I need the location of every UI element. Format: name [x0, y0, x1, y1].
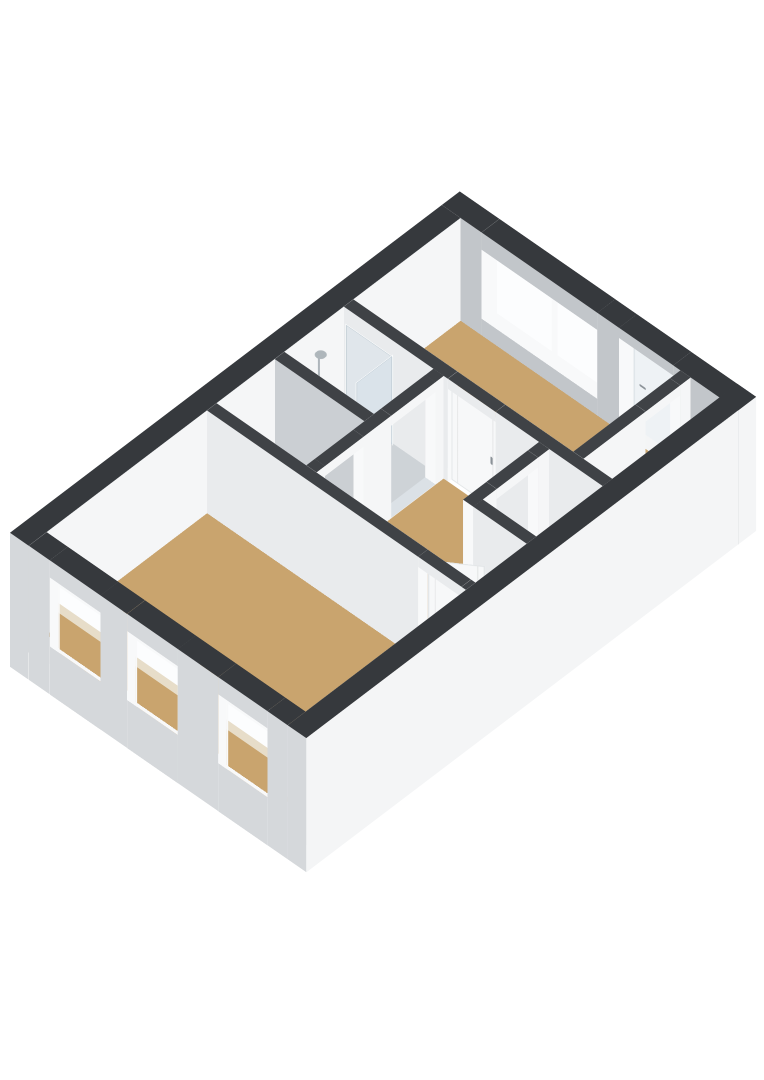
int-wall-bath-c-py — [435, 376, 443, 486]
bedroom-door-handle-icon — [490, 456, 492, 465]
balcony-door-handle-icon — [639, 384, 646, 391]
ext-wall-north-nx — [10, 533, 29, 680]
ext-wall-south-nx — [288, 725, 307, 872]
ext-wall-west-a-nx — [29, 546, 50, 695]
ext-wall-west-b-nx — [100, 595, 127, 748]
ext-wall-west-d-nx — [267, 711, 287, 859]
floorplan-3d-render — [0, 0, 764, 1080]
